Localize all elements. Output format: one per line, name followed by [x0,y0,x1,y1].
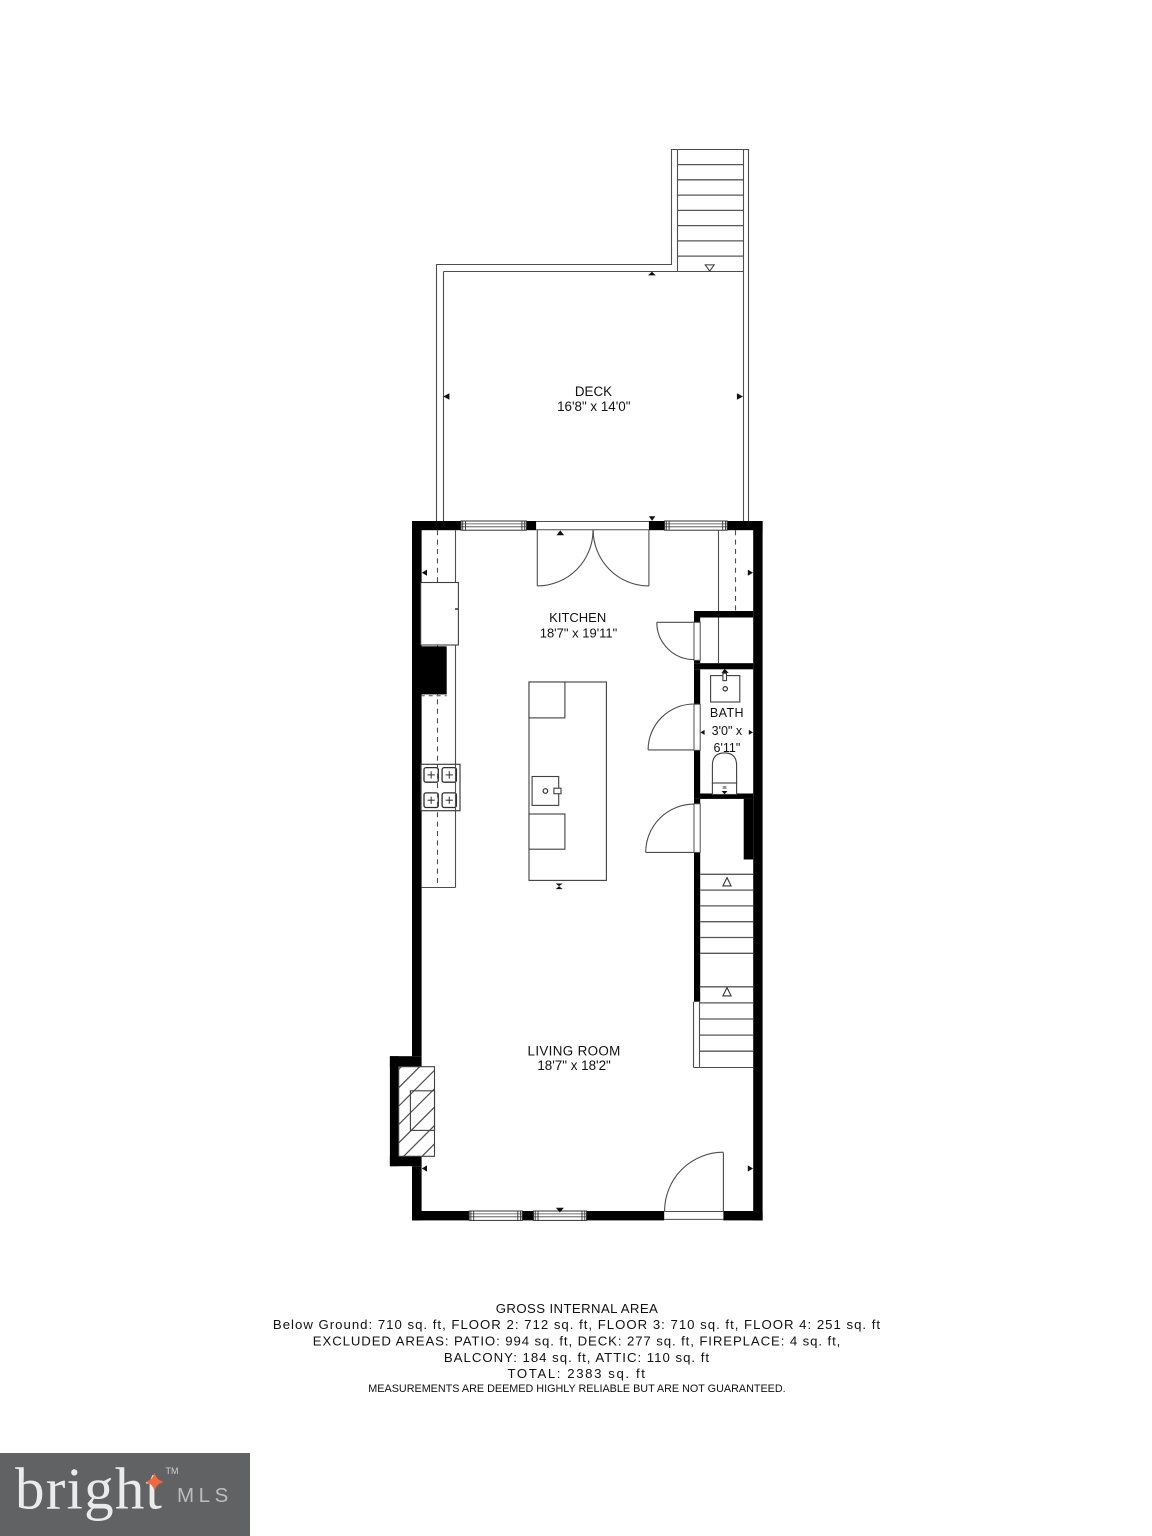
svg-text:TM: TM [166,1466,179,1476]
svg-text:KITCHEN: KITCHEN [549,610,606,625]
svg-text:LIVING ROOM: LIVING ROOM [528,1044,621,1059]
svg-text:6'11": 6'11" [714,741,741,755]
svg-text:16'8" x 14'0": 16'8" x 14'0" [557,399,631,414]
svg-text:TOTAL: 2383 sq. ft: TOTAL: 2383 sq. ft [508,1366,647,1381]
svg-text:MEASUREMENTS ARE DEEMED HIGHLY: MEASUREMENTS ARE DEEMED HIGHLY RELIABLE … [368,1383,785,1395]
svg-text:EXCLUDED AREAS: PATIO: 994 sq.: EXCLUDED AREAS: PATIO: 994 sq. ft, DECK:… [313,1334,841,1349]
svg-text:18'7" x 19'11": 18'7" x 19'11" [540,626,618,641]
svg-text:Below Ground: 710 sq. ft, FLOO: Below Ground: 710 sq. ft, FLOOR 2: 712 s… [273,1317,881,1332]
svg-text:GROSS INTERNAL AREA: GROSS INTERNAL AREA [496,1301,658,1316]
svg-text:DECK: DECK [575,384,612,399]
svg-text:18'7" x 18'2": 18'7" x 18'2" [537,1058,611,1073]
svg-text:BALCONY: 184 sq. ft, ATTIC: 11: BALCONY: 184 sq. ft, ATTIC: 110 sq. ft [444,1350,710,1365]
svg-text:3'0" x: 3'0" x [712,724,743,738]
svg-text:BATH: BATH [710,706,744,720]
svg-text:MLS: MLS [177,1484,233,1507]
svg-text:bright: bright [15,1456,163,1522]
